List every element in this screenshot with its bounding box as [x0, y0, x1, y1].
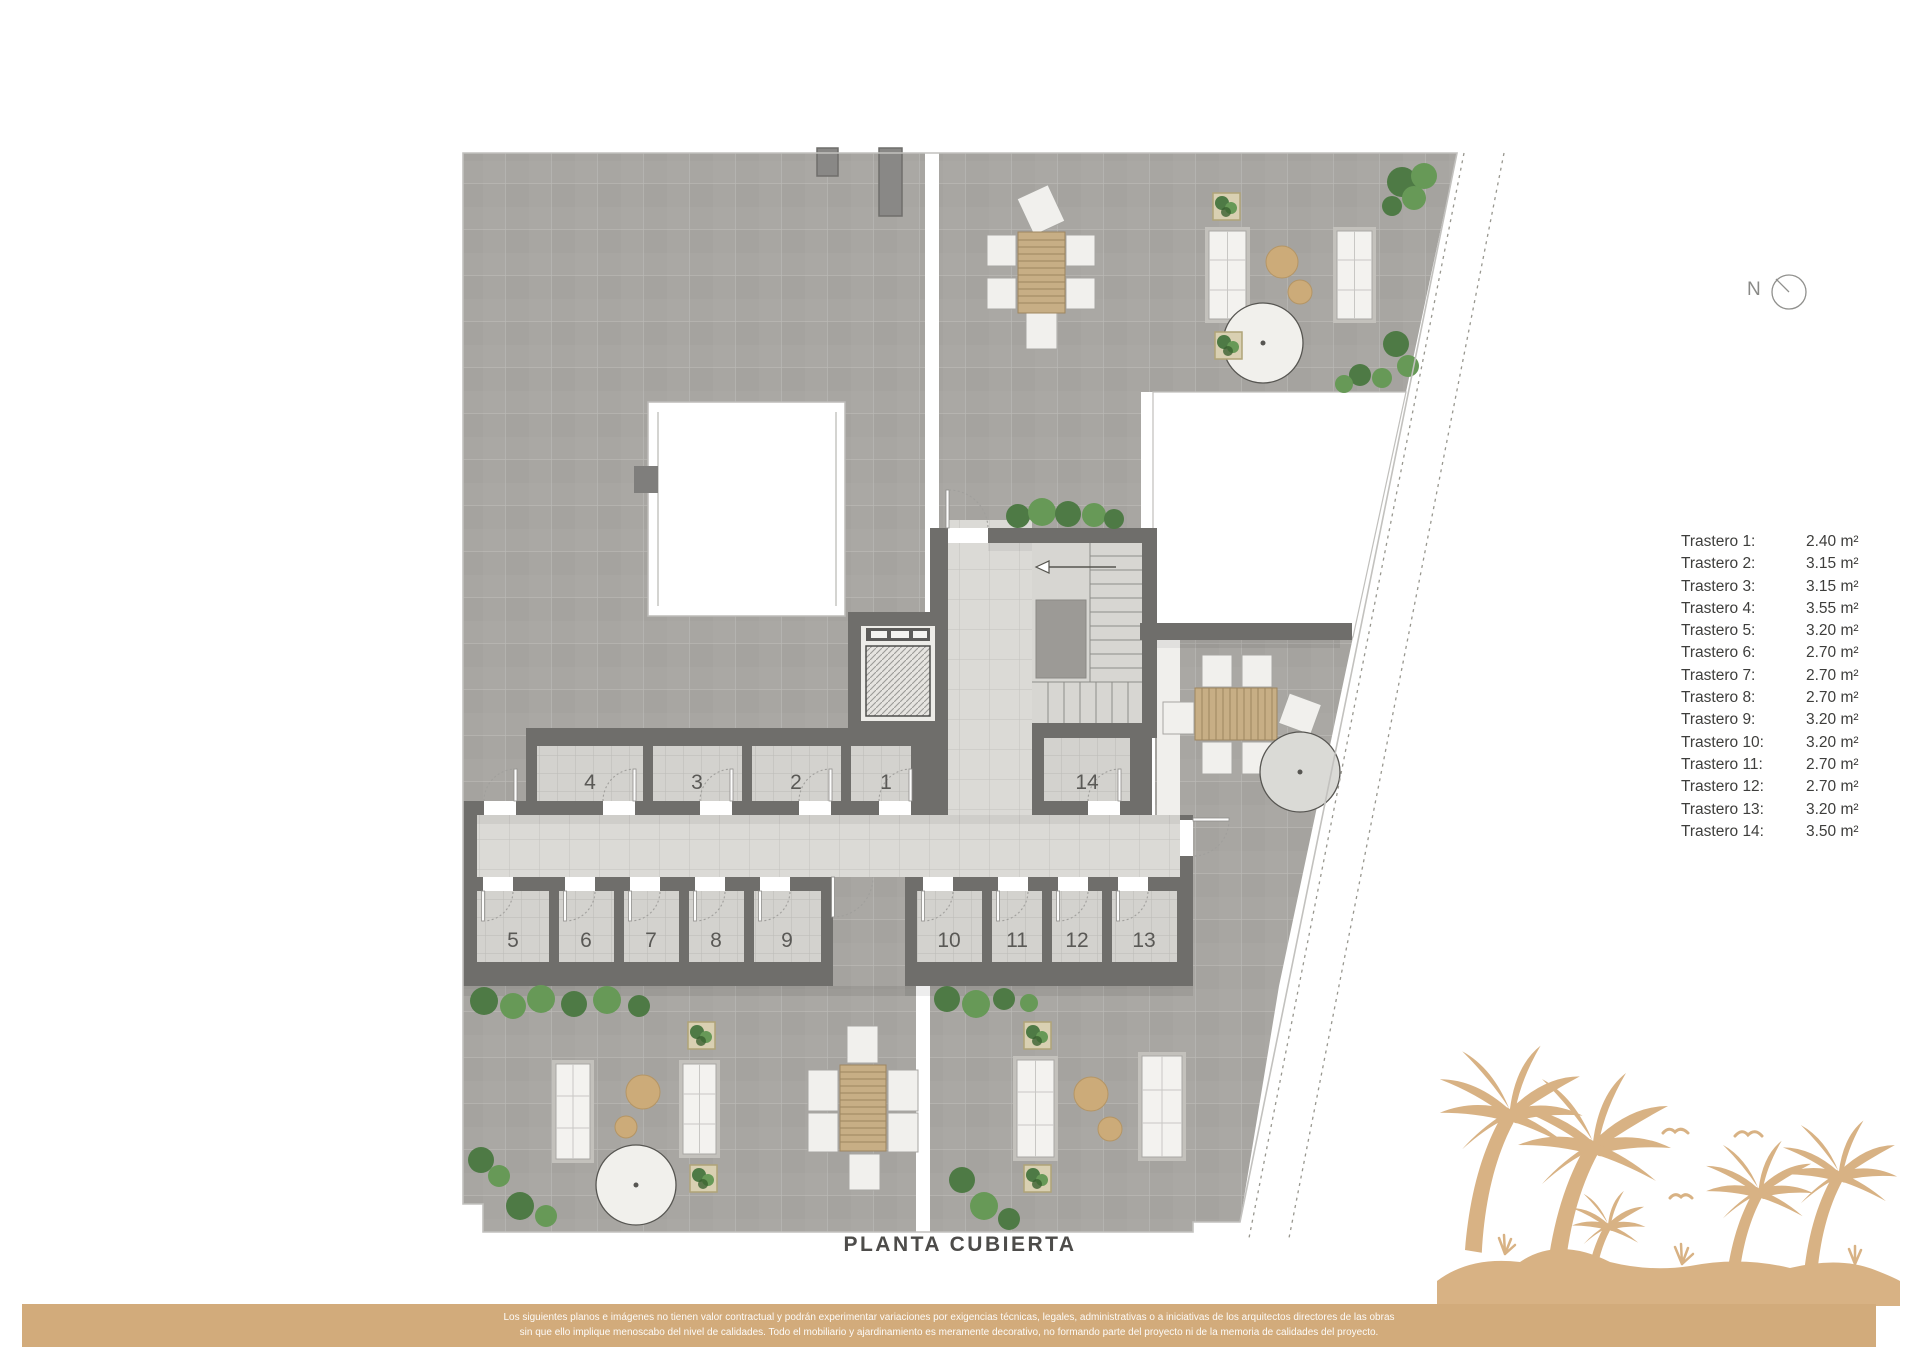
sofa [679, 1060, 720, 1158]
room-label-8: 8 [710, 929, 722, 952]
chair [1242, 655, 1272, 687]
parasol [596, 1145, 676, 1225]
chair [1202, 742, 1232, 774]
wood-table [1018, 232, 1065, 313]
legend-value: 2.40 m² [1806, 531, 1859, 553]
legend-value: 3.20 m² [1806, 799, 1859, 821]
legend-label: Trastero 13: [1681, 799, 1806, 821]
chair [987, 235, 1016, 266]
legend-row: Trastero 11:2.70 m² [1681, 754, 1859, 776]
legend-label: Trastero 8: [1681, 687, 1806, 709]
room-label-12: 12 [1065, 929, 1088, 952]
chair [808, 1070, 838, 1111]
chair [1026, 312, 1057, 349]
room-label-1: 1 [880, 771, 892, 794]
chair [888, 1113, 918, 1152]
legend-label: Trastero 11: [1681, 754, 1806, 776]
legend-label: Trastero 12: [1681, 776, 1806, 798]
legend-value: 3.20 m² [1806, 620, 1859, 642]
room-label-2: 2 [790, 771, 802, 794]
page: 1 2 3 4 5 6 7 8 9 10 11 12 13 14 N [0, 0, 1920, 1370]
legend-value: 3.15 m² [1806, 576, 1859, 598]
disclaimer-line-2: sin que ello implique menoscabo del nive… [22, 1326, 1876, 1341]
legend-value: 2.70 m² [1806, 754, 1859, 776]
legend-label: Trastero 1: [1681, 531, 1806, 553]
planter [1213, 193, 1240, 220]
legend-value: 2.70 m² [1806, 776, 1859, 798]
legend-value: 3.20 m² [1806, 709, 1859, 731]
compass: N [1747, 275, 1806, 309]
skylight-void-left [634, 402, 845, 616]
legend-row: Trastero 12:2.70 m² [1681, 776, 1859, 798]
sofa [552, 1060, 594, 1163]
side-table [1074, 1077, 1108, 1111]
room-label-6: 6 [580, 929, 592, 952]
legend-row: Trastero 14:3.50 m² [1681, 821, 1859, 843]
floor-plan-svg: 1 2 3 4 5 6 7 8 9 10 11 12 13 14 N [0, 0, 1920, 1370]
room-label-3: 3 [691, 771, 703, 794]
legend-label: Trastero 4: [1681, 598, 1806, 620]
planter [1024, 1165, 1051, 1192]
chair [808, 1113, 838, 1152]
planter [688, 1022, 715, 1049]
room-label-5: 5 [507, 929, 519, 952]
disclaimer-line-1: Los siguientes planos e imágenes no tien… [22, 1311, 1876, 1326]
legend-value: 3.55 m² [1806, 598, 1859, 620]
room-label-9: 9 [781, 929, 793, 952]
compass-label: N [1747, 279, 1761, 300]
legend-value: 2.70 m² [1806, 642, 1859, 664]
room-label-7: 7 [645, 929, 657, 952]
vent [879, 148, 902, 216]
chair [987, 278, 1016, 309]
sofa [1138, 1052, 1186, 1161]
chair [888, 1070, 918, 1111]
legend-value: 3.20 m² [1806, 732, 1859, 754]
legend-label: Trastero 10: [1681, 732, 1806, 754]
legend-row: Trastero 2:3.15 m² [1681, 553, 1859, 575]
side-table [1098, 1117, 1122, 1141]
side-table [1288, 280, 1312, 304]
legend-label: Trastero 14: [1681, 821, 1806, 843]
legend-value: 2.70 m² [1806, 687, 1859, 709]
room-label-10: 10 [937, 929, 960, 952]
chair [1163, 702, 1194, 734]
page-title: PLANTA CUBIERTA [0, 1233, 1920, 1257]
legend-label: Trastero 3: [1681, 576, 1806, 598]
side-table [1266, 246, 1298, 278]
parasol [1260, 732, 1340, 812]
room-label-14: 14 [1075, 771, 1099, 794]
chair [849, 1154, 880, 1190]
disclaimer-bar: Los siguientes planos e imágenes no tien… [22, 1304, 1876, 1347]
side-table [615, 1116, 637, 1138]
legend-row: Trastero 5:3.20 m² [1681, 620, 1859, 642]
side-table [626, 1075, 660, 1109]
sofa [1333, 227, 1376, 323]
chair [1066, 235, 1095, 266]
staircase [1032, 543, 1142, 723]
elevator-car [866, 646, 930, 716]
wood-table [840, 1065, 886, 1151]
legend-row: Trastero 8:2.70 m² [1681, 687, 1859, 709]
legend-row: Trastero 1:2.40 m² [1681, 531, 1859, 553]
chair [1202, 655, 1232, 687]
legend-value: 2.70 m² [1806, 665, 1859, 687]
legend-label: Trastero 7: [1681, 665, 1806, 687]
legend-row: Trastero 3:3.15 m² [1681, 576, 1859, 598]
sofa [1013, 1056, 1058, 1161]
legend-row: Trastero 4:3.55 m² [1681, 598, 1859, 620]
legend-row: Trastero 6:2.70 m² [1681, 642, 1859, 664]
elevator [848, 612, 948, 733]
legend-row: Trastero 7:2.70 m² [1681, 665, 1859, 687]
room-label-11: 11 [1006, 929, 1028, 952]
legend-row: Trastero 13:3.20 m² [1681, 799, 1859, 821]
planter [1215, 332, 1242, 359]
stair-landing [1036, 600, 1086, 678]
planter [1024, 1022, 1051, 1049]
palm-trees-decoration [1437, 1046, 1900, 1306]
chair [1066, 278, 1095, 309]
legend-row: Trastero 10:3.20 m² [1681, 732, 1859, 754]
sand-dune [1437, 1249, 1900, 1306]
chair [847, 1026, 878, 1063]
skylight-void-right [1153, 392, 1406, 637]
legend-value: 3.15 m² [1806, 553, 1859, 575]
storage-area-legend: Trastero 1:2.40 m²Trastero 2:3.15 m²Tras… [1681, 531, 1859, 843]
room-label-13: 13 [1132, 929, 1155, 952]
legend-row: Trastero 9:3.20 m² [1681, 709, 1859, 731]
legend-label: Trastero 6: [1681, 642, 1806, 664]
legend-label: Trastero 5: [1681, 620, 1806, 642]
room-label-4: 4 [584, 771, 596, 794]
legend-value: 3.50 m² [1806, 821, 1859, 843]
planter [690, 1165, 717, 1192]
legend-label: Trastero 9: [1681, 709, 1806, 731]
legend-label: Trastero 2: [1681, 553, 1806, 575]
